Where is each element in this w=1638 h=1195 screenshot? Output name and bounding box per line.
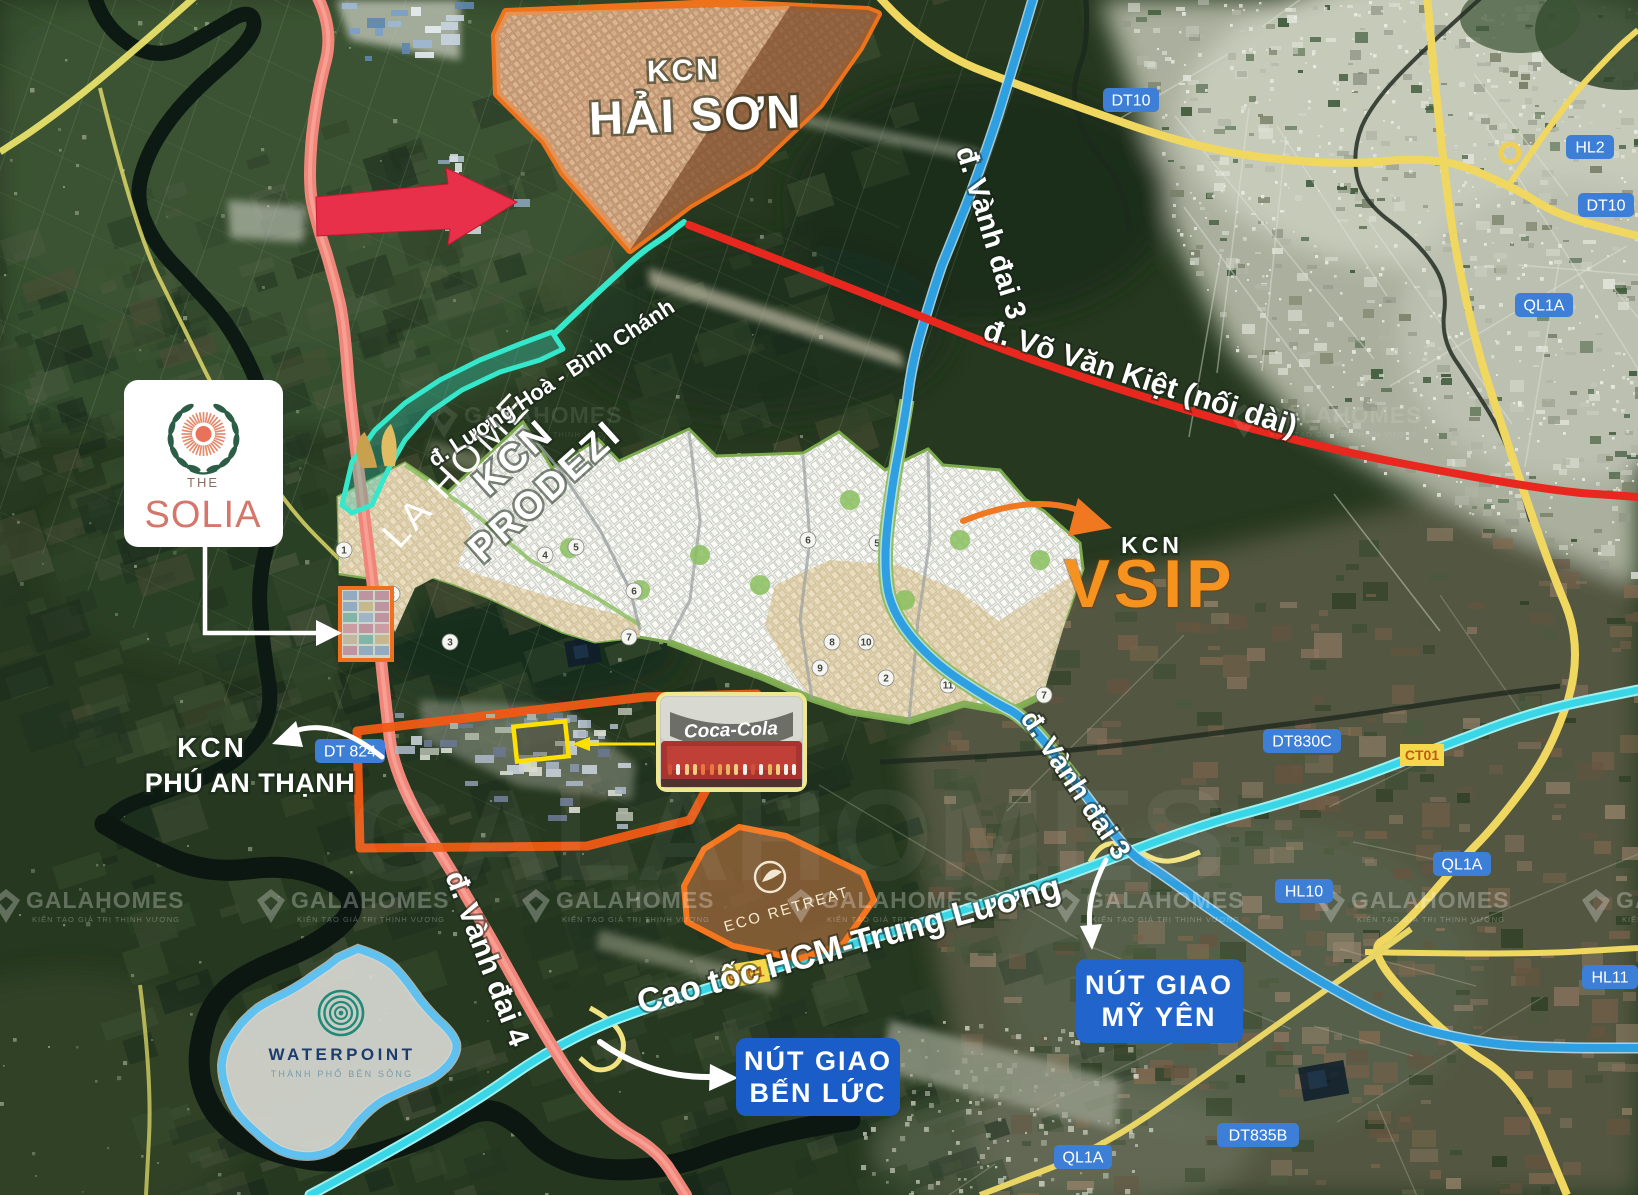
svg-text:DT10: DT10 [1111,93,1150,110]
svg-text:GALAHOMES: GALAHOMES [1351,887,1510,913]
svg-text:GALAHOMES: GALAHOMES [26,887,185,913]
svg-text:KIẾN TẠO GIÁ TRỊ THỊNH VƯỢNG: KIẾN TẠO GIÁ TRỊ THỊNH VƯỢNG [32,914,180,924]
svg-text:GALAHOMES: GALAHOMES [1086,887,1245,913]
svg-text:WATERPOINT: WATERPOINT [268,1045,415,1064]
svg-text:KIẾN TẠO GIÁ TRỊ THỊNH VƯỢNG: KIẾN TẠO GIÁ TRỊ THỊNH VƯỢNG [1357,914,1505,924]
svg-text:NÚT GIAO: NÚT GIAO [744,1045,892,1076]
svg-text:PHÚ AN THẠNH: PHÚ AN THẠNH [145,767,356,798]
svg-text:GALAHOMES: GALAHOMES [291,887,450,913]
svg-text:HL2: HL2 [1575,140,1604,157]
svg-text:KCN: KCN [646,53,721,89]
svg-text:KIẾN TẠO GIÁ TRỊ THỊNH VƯỢNG: KIẾN TẠO GIÁ TRỊ THỊNH VƯỢNG [297,914,445,924]
svg-text:QL1A: QL1A [1442,857,1483,874]
svg-text:KIẾN TẠO GIÁ TRỊ THỊNH VƯỢNG: KIẾN TẠO GIÁ TRỊ THỊNH VƯỢNG [562,914,710,924]
svg-text:9: 9 [817,664,823,675]
svg-text:DT835B: DT835B [1229,1128,1288,1145]
svg-text:7: 7 [626,633,632,644]
svg-text:HẢI SƠN: HẢI SƠN [588,84,803,144]
svg-text:SOLIA: SOLIA [145,494,262,536]
svg-text:1: 1 [341,546,347,557]
svg-text:QL1A: QL1A [1063,1150,1104,1167]
svg-text:5: 5 [573,543,579,554]
svg-text:THE: THE [187,475,219,490]
svg-text:MỸ YÊN: MỸ YÊN [1101,1001,1216,1032]
svg-text:3: 3 [447,638,453,649]
svg-text:THÀNH PHỐ BÊN SÔNG: THÀNH PHỐ BÊN SÔNG [271,1068,414,1079]
svg-text:10: 10 [860,638,872,649]
svg-text:DT830C: DT830C [1272,734,1332,751]
svg-text:NÚT GIAO: NÚT GIAO [1085,969,1233,1000]
svg-text:6: 6 [805,536,811,547]
svg-text:GALAHOMES: GALAHOMES [1616,887,1638,913]
svg-text:KCN: KCN [177,732,247,763]
svg-text:2: 2 [883,674,889,685]
svg-text:CT01: CT01 [1405,747,1439,763]
svg-text:8: 8 [829,638,835,649]
svg-text:GALAHOMES: GALAHOMES [556,887,715,913]
svg-text:HL11: HL11 [1591,970,1628,987]
svg-text:QL1A: QL1A [1524,298,1565,315]
svg-text:VSIP: VSIP [1065,546,1236,622]
svg-text:KIẾN TẠO GIÁ TRỊ THỊNH VƯỢNG: KIẾN TẠO GIÁ TRỊ THỊNH VƯỢNG [1092,914,1240,924]
svg-text:BẾN LỨC: BẾN LỨC [750,1077,887,1108]
svg-text:HL10: HL10 [1285,884,1323,901]
svg-text:6: 6 [631,587,637,598]
svg-text:4: 4 [542,551,548,562]
svg-text:KIẾN TẠO GIÁ TRỊ THỊNH VƯỢNG: KIẾN TẠO GIÁ TRỊ THỊNH VƯỢNG [1622,914,1638,924]
svg-text:Coca-Cola: Coca-Cola [684,718,779,742]
svg-text:DT10: DT10 [1586,198,1625,215]
svg-text:7: 7 [1041,691,1047,702]
